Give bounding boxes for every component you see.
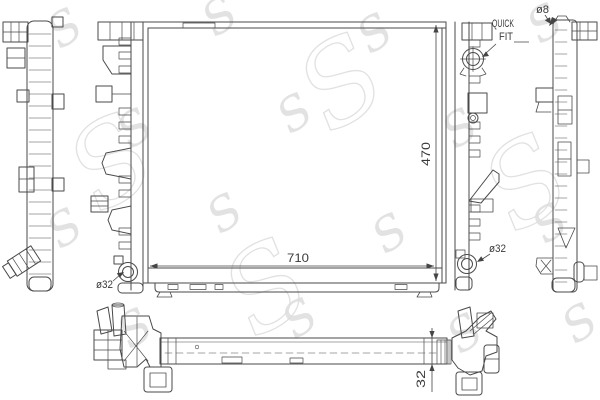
callout-dia32-right: ø32 — [477, 243, 506, 262]
watermark-letter: S — [552, 292, 600, 354]
arrowhead — [433, 274, 438, 282]
quick-fit-label-line2: FIT — [499, 31, 513, 43]
far-left-profile-view — [1, 17, 64, 291]
dim-width-label: 710 — [287, 253, 309, 265]
angled-outlet-pipe — [1, 246, 40, 280]
arrowhead — [429, 364, 434, 371]
dim-thickness-label: 32 — [416, 370, 428, 388]
watermark-layer: S S S S S S S S S S S S S S S S S S S — [37, 0, 600, 364]
arrowhead — [482, 51, 489, 57]
port-fitting-left — [119, 263, 138, 282]
quick-fit-label-line1: QUICK — [492, 18, 514, 30]
callout-quick-fit: QUICK FIT — [482, 18, 529, 57]
arrowhead — [433, 25, 438, 33]
port-fitting-right — [458, 255, 477, 274]
radiator-technical-drawing: S S S S S S S S S S S S S S S S S S S — [0, 0, 600, 400]
dim-height-label: 470 — [421, 142, 433, 166]
watermark-letter: S — [362, 202, 418, 264]
drawing-svg: S S S S S S S S S S S S S S S S S S S — [0, 0, 600, 400]
port-diameter-label-right: ø32 — [489, 243, 506, 255]
arrowhead — [477, 256, 484, 262]
bleed-diameter-label: ø8 — [536, 4, 549, 16]
port-diameter-label-left: ø32 — [96, 279, 113, 291]
watermark-letter: S — [192, 0, 248, 47]
dimension-height: 470 — [421, 25, 439, 281]
quick-fit-connector — [460, 47, 486, 77]
callout-dia32-left: ø32 — [96, 272, 124, 291]
arrowhead — [429, 331, 434, 338]
watermark-letter: S — [37, 0, 93, 59]
